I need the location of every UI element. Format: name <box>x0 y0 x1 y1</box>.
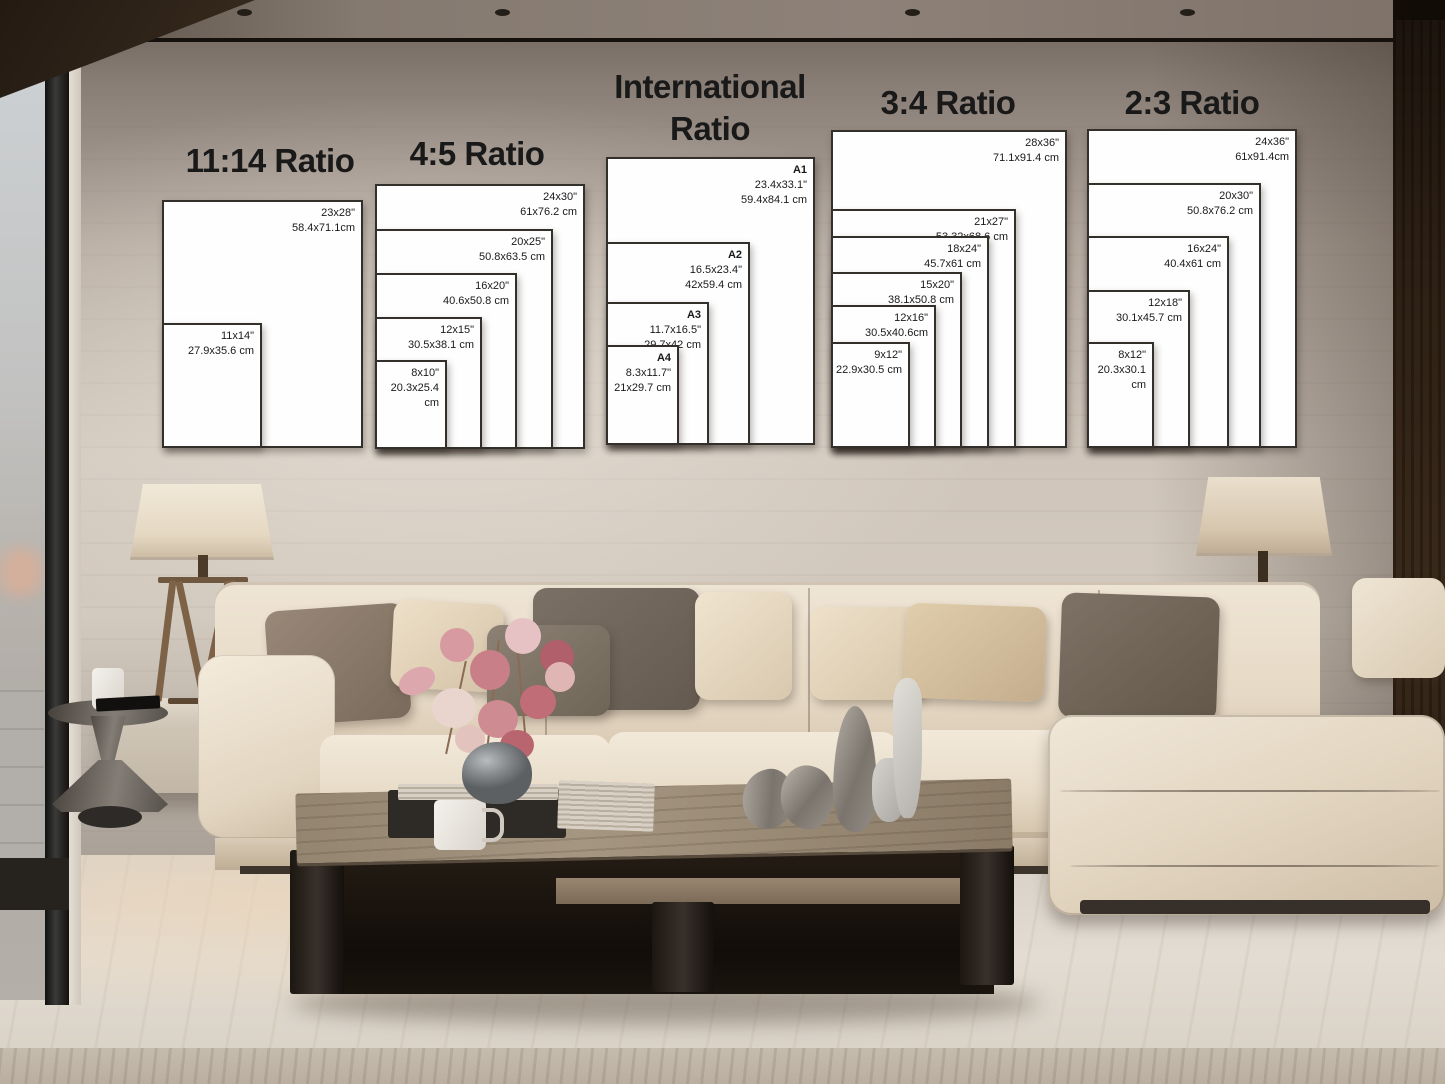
frame-size-inches: 20x25" <box>479 235 545 250</box>
frame-size-label: 9x12" 22.9x30.5 cm <box>836 348 902 378</box>
flower <box>505 618 541 654</box>
frame-size-cm: 71.1x91.4 cm <box>993 151 1059 166</box>
frame-size-inches: 12x15" <box>408 323 474 338</box>
frame-size-cm: 22.9x30.5 cm <box>836 363 902 378</box>
frame-size-label: 16x24" 40.4x61 cm <box>1164 242 1221 272</box>
ratio-group-title-international: International Ratio <box>575 66 845 150</box>
ratio-group-title-11-14: 11:14 Ratio <box>150 140 390 182</box>
frame-size-inches: 23.4x33.1" <box>741 178 807 193</box>
frame-size-inches: 16x24" <box>1164 242 1221 257</box>
frame-size-label: 11x14" 27.9x35.6 cm <box>188 329 254 359</box>
window-corner-trim <box>69 55 81 1005</box>
flower <box>440 628 474 662</box>
right-lamp-shade <box>1196 477 1332 556</box>
floor-plank-strip <box>0 1048 1445 1084</box>
frame-size-name: A2 <box>685 248 742 263</box>
frame-size-cm: 61x91.4cm <box>1235 150 1289 165</box>
flower <box>520 685 556 719</box>
ratio-title-line2: Ratio <box>575 108 845 150</box>
frame-size-inches: 16.5x23.4" <box>685 263 742 278</box>
left-lamp-stem <box>198 555 208 579</box>
frame-size-cm: 45.7x61 cm <box>924 257 981 272</box>
frame-size-label: A1 23.4x33.1" 59.4x84.1 cm <box>741 163 807 208</box>
flower <box>545 662 575 692</box>
flower <box>470 650 510 690</box>
frame-size-inches: 15x20" <box>888 278 954 293</box>
frame-size-label: 12x18" 30.1x45.7 cm <box>1116 296 1182 326</box>
tall-white-bottle-vase <box>893 678 922 818</box>
frame-size-label: A4 8.3x11.7" 21x29.7 cm <box>614 351 671 396</box>
pillow-beige <box>903 603 1046 703</box>
poster-frame-9x12: 9x12" 22.9x30.5 cm <box>831 342 910 448</box>
frame-size-cm: 40.6x50.8 cm <box>443 294 509 309</box>
coffee-table-shelf <box>556 878 980 904</box>
window-sill <box>0 858 69 910</box>
frame-size-inches: 12x16" <box>865 311 928 326</box>
frame-size-cm: 21x29.7 cm <box>614 381 671 396</box>
frame-size-label: 20x25" 50.8x63.5 cm <box>479 235 545 265</box>
frame-size-label: A2 16.5x23.4" 42x59.4 cm <box>685 248 742 293</box>
coffee-table-center-support <box>652 902 714 992</box>
frame-size-cm: 40.4x61 cm <box>1164 257 1221 272</box>
frame-size-label: 15x20" 38.1x50.8 cm <box>888 278 954 308</box>
frame-size-name: A1 <box>741 163 807 178</box>
frame-size-cm: 42x59.4 cm <box>685 278 742 293</box>
frame-size-cm: 50.8x76.2 cm <box>1187 204 1253 219</box>
frame-size-cm: 20.3x25.4 cm <box>377 381 439 411</box>
coffee-table-leg <box>960 845 1014 985</box>
frame-size-inches: 8.3x11.7" <box>614 366 671 381</box>
coffee-table-leg <box>290 850 344 994</box>
frame-size-inches: 12x18" <box>1116 296 1182 311</box>
window-outdoor-view <box>0 690 44 865</box>
frame-size-cm: 61x76.2 cm <box>520 205 577 220</box>
flower <box>432 688 476 728</box>
frame-size-label: 23x28" 58.4x71.1cm <box>292 206 355 236</box>
left-lamp-shade <box>130 484 274 560</box>
pillow-cream-right <box>1352 578 1445 678</box>
pillow-dark-taupe <box>1058 592 1220 722</box>
frame-size-label: 24x36" 61x91.4cm <box>1235 135 1289 165</box>
ratio-group-title-4-5: 4:5 Ratio <box>357 133 597 175</box>
frame-size-label: 12x16" 30.5x40.6cm <box>865 311 928 341</box>
frame-size-inches: 20x30" <box>1187 189 1253 204</box>
ceiling-light-icon <box>237 9 252 16</box>
living-room-poster-size-mockup: 11:14 Ratio 23x28" 58.4x71.1cm 11x14" 27… <box>0 0 1445 1084</box>
frame-size-inches: 23x28" <box>292 206 355 221</box>
frame-size-inches: 21x27" <box>936 215 1008 230</box>
frame-size-cm: 27.9x35.6 cm <box>188 344 254 359</box>
frame-size-label: 16x20" 40.6x50.8 cm <box>443 279 509 309</box>
pillow-cream <box>695 592 792 700</box>
ratio-group-title-3-4: 3:4 Ratio <box>828 82 1068 124</box>
ceiling-light-icon <box>1180 9 1195 16</box>
ceiling-light-icon <box>905 9 920 16</box>
ratio-title-line1: International <box>575 66 845 108</box>
ratio-group-title-2-3: 2:3 Ratio <box>1072 82 1312 124</box>
poster-frame-a4: A4 8.3x11.7" 21x29.7 cm <box>606 345 679 445</box>
frame-size-cm: 30.5x38.1 cm <box>408 338 474 353</box>
frame-size-inches: 16x20" <box>443 279 509 294</box>
frame-size-name: A4 <box>614 351 671 366</box>
window-cloud-reflection <box>0 548 42 596</box>
chaise-base-shadow <box>1080 900 1430 914</box>
frame-size-inches: 28x36" <box>993 136 1059 151</box>
frame-size-cm: 50.8x63.5 cm <box>479 250 545 265</box>
frame-size-inches: 24x30" <box>520 190 577 205</box>
chaise-piping <box>1070 865 1440 867</box>
frame-size-label: 8x10" 20.3x25.4 cm <box>377 366 439 411</box>
frame-size-inches: 8x12" <box>1089 348 1146 363</box>
frame-size-label: 18x24" 45.7x61 cm <box>924 242 981 272</box>
frame-size-inches: 9x12" <box>836 348 902 363</box>
frame-size-label: 12x15" 30.5x38.1 cm <box>408 323 474 353</box>
frame-size-inches: 11x14" <box>188 329 254 344</box>
poster-frame-8x12: 8x12" 20.3x30.1 cm <box>1087 342 1154 448</box>
sofa-chaise-ottoman <box>1048 715 1445 915</box>
mug-handle <box>482 808 504 842</box>
frame-size-cm: 58.4x71.1cm <box>292 221 355 236</box>
frame-size-inches: 18x24" <box>924 242 981 257</box>
stool-base <box>78 806 142 828</box>
frame-size-label: 28x36" 71.1x91.4 cm <box>993 136 1059 166</box>
poster-frame-8x10: 8x10" 20.3x25.4 cm <box>375 360 447 449</box>
frame-size-label: 20x30" 50.8x76.2 cm <box>1187 189 1253 219</box>
poster-frame-11x14: 11x14" 27.9x35.6 cm <box>162 323 262 448</box>
frame-size-inches: 8x10" <box>377 366 439 381</box>
frame-size-cm: 59.4x84.1 cm <box>741 193 807 208</box>
mug-on-table <box>434 800 486 850</box>
frame-size-cm: 30.1x45.7 cm <box>1116 311 1182 326</box>
frame-size-inches: 11.7x16.5" <box>644 323 701 338</box>
frame-size-name: A3 <box>644 308 701 323</box>
frame-size-cm: 30.5x40.6cm <box>865 326 928 341</box>
chaise-piping <box>1060 790 1440 792</box>
frame-size-label: 24x30" 61x76.2 cm <box>520 190 577 220</box>
magazine <box>557 780 655 831</box>
frame-size-label: 8x12" 20.3x30.1 cm <box>1089 348 1146 393</box>
ceiling-light-icon <box>495 9 510 16</box>
frame-size-inches: 24x36" <box>1235 135 1289 150</box>
ceiling-shadow-line <box>55 38 1445 42</box>
flower-vase <box>462 742 532 804</box>
frame-size-cm: 20.3x30.1 cm <box>1089 363 1146 393</box>
